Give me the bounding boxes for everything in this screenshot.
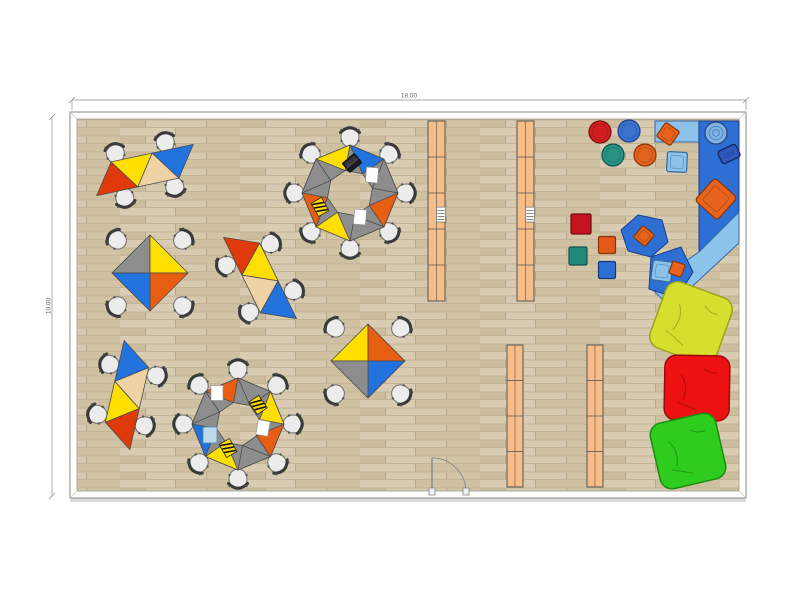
shelf-unit [517,121,535,301]
round-pouf [618,120,640,142]
shelf-unit [587,345,603,487]
paper-blue-item [203,427,217,443]
chair [284,183,304,202]
chair [173,414,193,433]
floor-cushion [569,247,587,265]
floor-cushion [599,262,616,279]
floor-cushion [599,237,616,254]
paper-item [256,420,270,437]
floor-plan-viewport: 18.00 10.00 [0,0,800,600]
round-pouf [589,121,611,143]
paper-item [211,386,223,401]
floor-cushion [571,214,591,234]
chair [228,359,247,379]
shelf-unit [428,121,446,301]
chair [340,127,359,147]
classroom-floor-plan: 18.00 10.00 [0,0,800,600]
door-post [429,488,435,495]
round-pouf [634,144,656,166]
beanbag [648,411,728,491]
paper-item [353,209,366,225]
chair [228,469,247,489]
shelf-unit [507,345,523,487]
door-post [463,488,469,495]
chair [340,239,359,259]
seat-cushion [666,151,687,172]
round-pouf [602,144,624,166]
chair [283,414,303,433]
top-dimension-label: 18.00 [401,93,418,100]
shelf-display-item [526,207,535,222]
round-basket [705,122,727,144]
chair [396,183,416,202]
beanbag [664,355,730,421]
shelf-display-item [437,207,446,222]
wall-shadow [70,498,746,502]
paper-item [365,167,378,183]
left-dimension-label: 10.00 [46,297,53,314]
octagon-table-cluster [192,378,284,470]
